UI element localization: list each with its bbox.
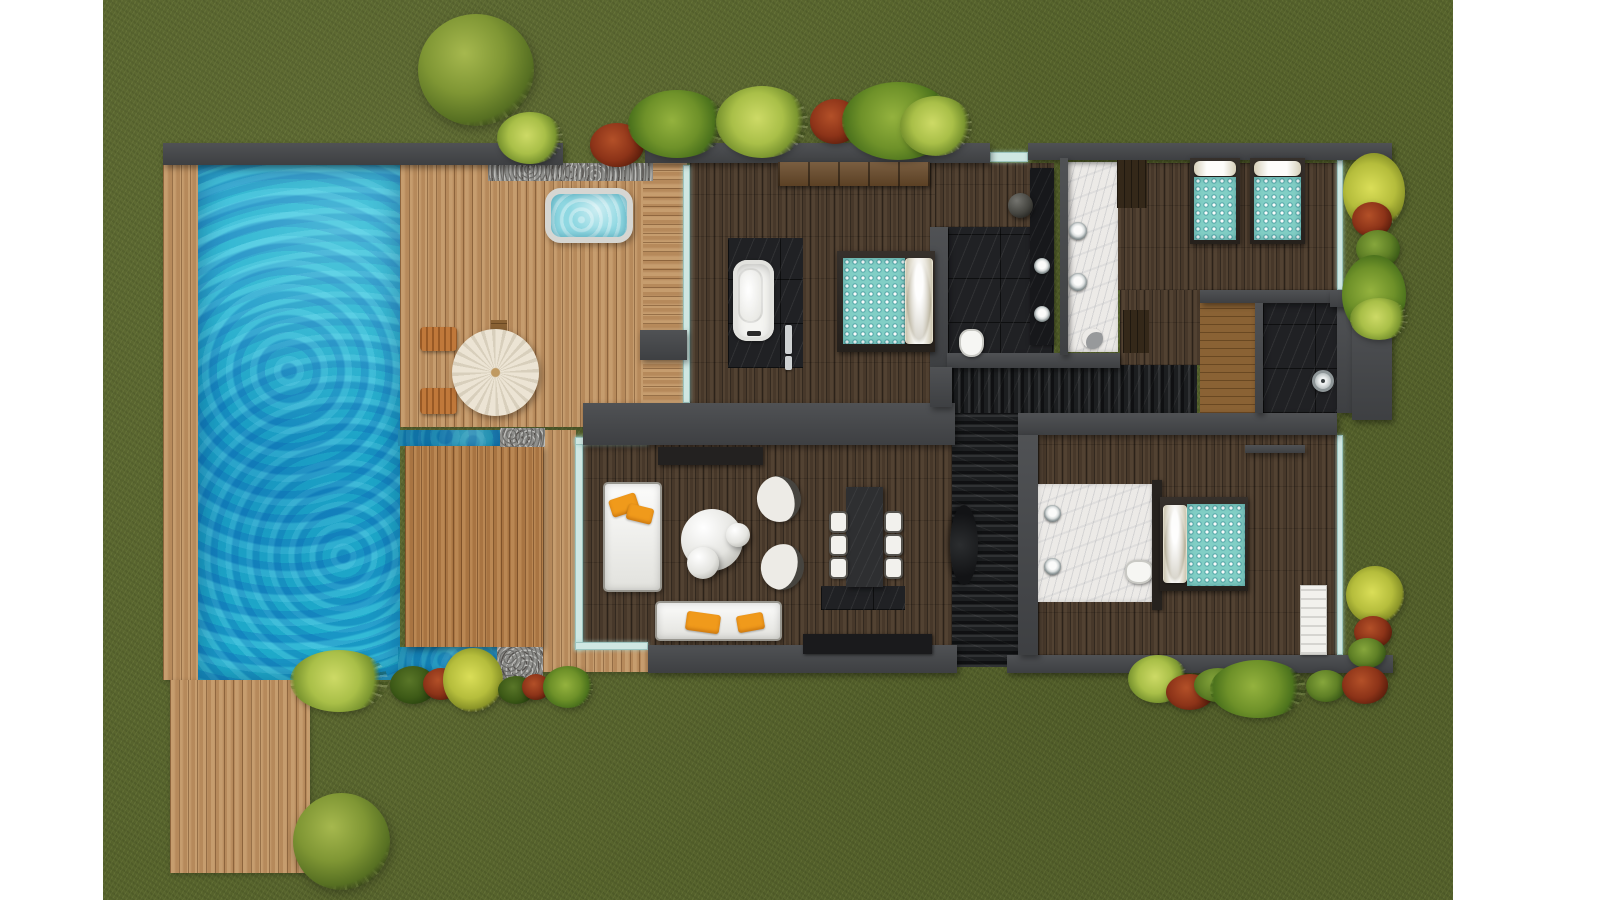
fern-west-2 [443, 648, 503, 712]
shrub-pool-north [418, 14, 534, 126]
bench-bedroom2 [1300, 585, 1327, 655]
dining-chair-l2 [829, 534, 848, 556]
glass-living-west [575, 437, 583, 650]
wall-bedroom2-west [1018, 435, 1038, 655]
fern-west-1 [290, 650, 388, 712]
wall-dressing-east [1060, 158, 1068, 355]
vanity-counter-white [1068, 162, 1118, 352]
glass-bedroom2-east [1337, 435, 1343, 655]
glass-twin-east [1337, 160, 1343, 290]
bed2-pillows [1163, 505, 1187, 583]
towel-rail-a [785, 325, 792, 354]
hallway-slats [948, 365, 1197, 413]
toilet-bedroom2 [1125, 560, 1153, 584]
wall-deck-stub [640, 330, 687, 360]
wall-twin-south [1200, 290, 1337, 303]
deck-pool-left [163, 165, 200, 680]
entry-mat-wood [1200, 298, 1255, 413]
bathtub [733, 260, 774, 341]
floor-plan-canvas [0, 0, 1600, 900]
fern-north-2 [628, 90, 726, 158]
deck-walkway [643, 163, 687, 405]
fern-north-3 [716, 86, 808, 158]
wall-fill [930, 367, 952, 407]
basin-crescent [1082, 328, 1103, 349]
planter-pot [1008, 193, 1033, 218]
dining-chair-l1 [829, 511, 848, 533]
shrub-pool-south [293, 793, 390, 890]
wall-bedroom2-south [1007, 655, 1393, 673]
twin-bed-b-pillow [1254, 161, 1301, 176]
wall-shower-west [1255, 303, 1263, 413]
toilet-master [959, 329, 984, 357]
wall-mid-band [583, 403, 955, 445]
wardrobe-master [778, 162, 930, 186]
sink-white-north [1069, 222, 1087, 240]
glass-living-south [575, 642, 648, 650]
sink2-north [1044, 505, 1061, 522]
dining-rug [821, 586, 905, 610]
sink-white-south [1069, 273, 1087, 291]
twin-bed-a-mattress [1194, 177, 1236, 240]
twin-bed-b-mattress [1254, 177, 1301, 240]
bed-master-pillows [905, 258, 933, 344]
deck-island [405, 446, 543, 647]
glass-entry-door [990, 152, 1028, 162]
deck-south-strip [576, 648, 648, 672]
bed-master-mattress [843, 258, 905, 344]
sink2-south [1044, 558, 1061, 575]
gravel-pad-north [500, 428, 545, 447]
towel-rail-b [785, 356, 792, 370]
shrub-red-south-2 [1342, 666, 1388, 704]
fern-south-2 [1210, 660, 1306, 718]
shrub-south-2 [1306, 670, 1346, 702]
fern-north-5 [900, 96, 972, 156]
dining-chair-l3 [829, 557, 848, 579]
dining-chair-r2 [884, 534, 903, 556]
cabinet-twin-south [1123, 310, 1149, 353]
deck-bottom-left [170, 680, 310, 873]
fern-east-3 [1350, 298, 1408, 340]
fern-west-3 [543, 666, 593, 708]
bed2-mattress [1187, 504, 1245, 586]
gravel-north-strip [488, 163, 653, 181]
lounger-south [420, 388, 457, 414]
tv-panel [803, 634, 932, 654]
glass-master-west [683, 165, 690, 403]
floor-shower [1263, 303, 1337, 413]
pool [198, 165, 400, 680]
lounger-north [420, 327, 457, 351]
dining-table [846, 487, 883, 587]
shrub-east-2 [1348, 638, 1386, 668]
plunge-pool [545, 188, 633, 243]
fireplace [950, 505, 978, 585]
vanity2-marble [1038, 484, 1153, 602]
deck-mid-strip [543, 430, 576, 672]
coffee-table-small [687, 547, 719, 579]
wall-bedroom2-north [1018, 413, 1337, 435]
wall-ledge [1245, 445, 1305, 453]
wardrobe-twin-north [1117, 160, 1147, 208]
pool-channel-north [398, 430, 502, 446]
sink-dark-north [1034, 258, 1050, 274]
dining-chair-r3 [884, 557, 903, 579]
dining-chair-r1 [884, 511, 903, 533]
sink-dark-south [1034, 306, 1050, 322]
coffee-table-mini [726, 523, 750, 547]
parasol [452, 329, 539, 416]
fern-north-1 [497, 112, 563, 164]
sideboard [658, 447, 763, 465]
shower-head [1312, 370, 1334, 392]
twin-bed-a-pillow [1194, 161, 1236, 176]
